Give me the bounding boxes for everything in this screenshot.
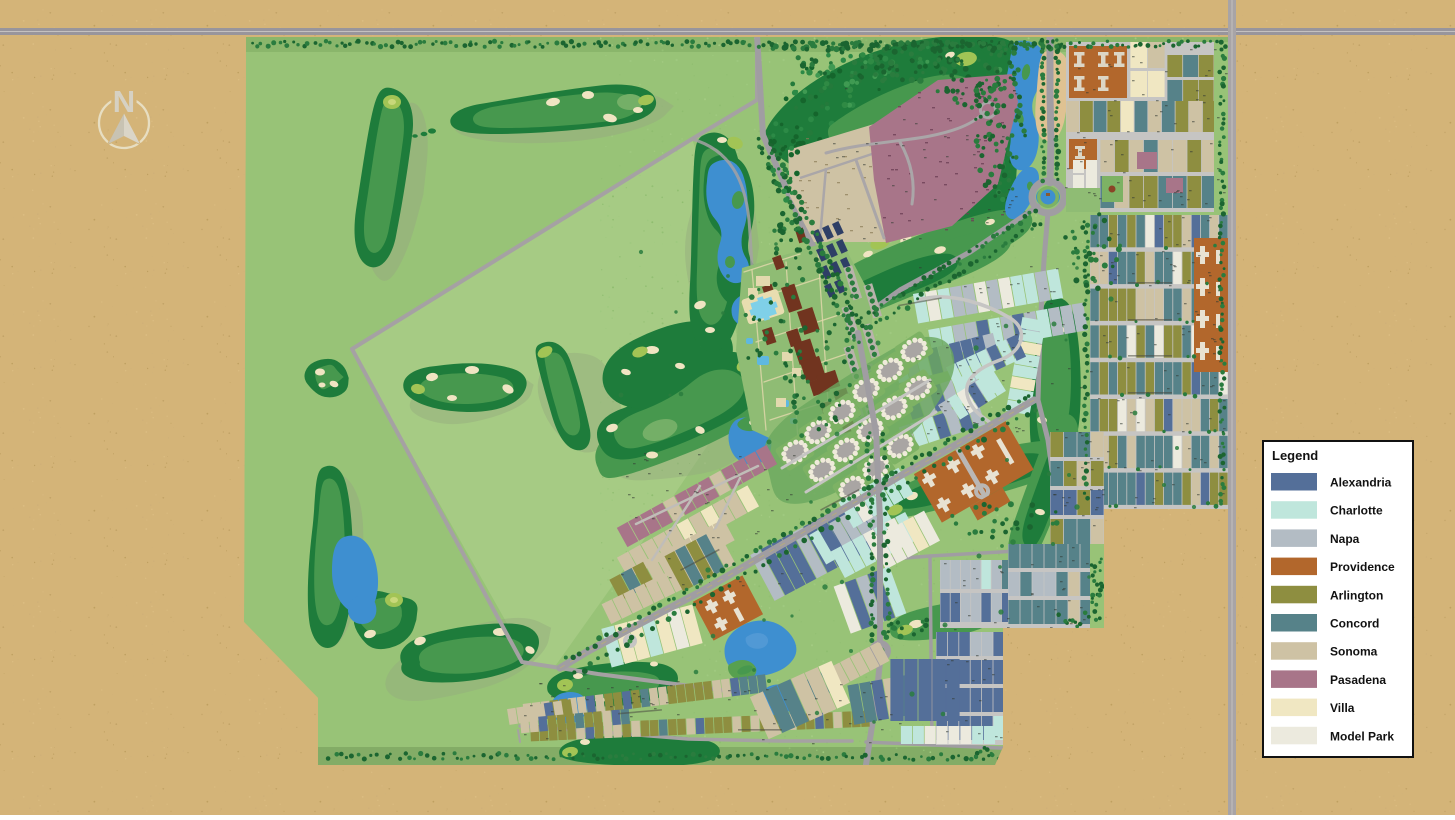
svg-text:Charlotte: Charlotte — [1330, 504, 1383, 518]
svg-text:Model Park: Model Park — [1330, 729, 1394, 743]
svg-text:Napa: Napa — [1330, 532, 1360, 546]
svg-text:Arlington: Arlington — [1330, 588, 1383, 602]
svg-text:Providence: Providence — [1330, 560, 1395, 574]
svg-text:Pasadena: Pasadena — [1330, 673, 1386, 687]
svg-text:Villa: Villa — [1330, 701, 1355, 715]
svg-text:Sonoma: Sonoma — [1330, 645, 1378, 659]
svg-text:Concord: Concord — [1330, 617, 1379, 631]
svg-text:Alexandria: Alexandria — [1330, 476, 1392, 490]
svg-text:Legend: Legend — [1272, 448, 1318, 463]
